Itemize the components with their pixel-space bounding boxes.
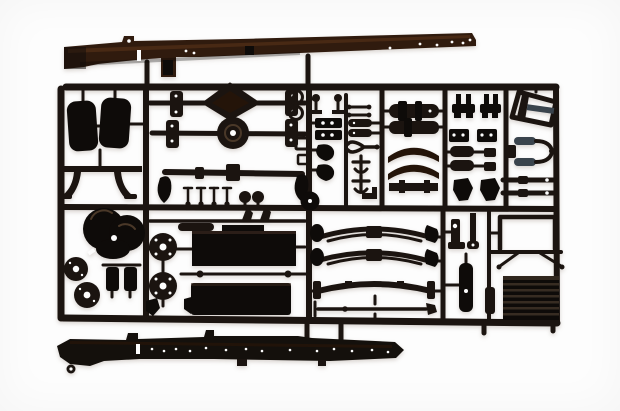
dumbbell-ends-4 (367, 113, 372, 118)
hub-disc-2-bolts-1 (155, 278, 158, 281)
hub-disc-2-bolts-2 (169, 278, 172, 281)
brake-drum-base (96, 239, 130, 259)
chassis-rail-bottom-rivet-12 (351, 350, 354, 353)
seat-legs-1 (500, 253, 518, 266)
radiator-ribs-2 (503, 289, 559, 292)
battery-box-1 (106, 267, 119, 291)
chassis-rail-bottom-hook-hole (69, 367, 72, 370)
seat-feet-1 (497, 265, 502, 270)
spring-hanger-2-prong-b (493, 94, 498, 105)
chassis-rail-top-ear-hole (127, 39, 131, 43)
brake-disc-1-bolts-1 (69, 262, 71, 264)
support-stand-foot-right (124, 194, 137, 199)
radiator-ribs-5 (503, 307, 559, 310)
clevis-prong-2 (536, 152, 552, 162)
muffler-2 (389, 121, 439, 134)
brake-disc-2-hole (84, 292, 91, 299)
chassis-rail-bottom-rivet-6 (225, 349, 228, 352)
axle-flange-3-bolts-2 (171, 140, 174, 143)
spring-hanger-2-prong-a (484, 94, 489, 105)
axle-flange-4-bolts-2 (290, 139, 293, 142)
shock-absorber-2-dot (353, 132, 355, 134)
chassis-rail-bottom-rivet-1 (151, 348, 154, 351)
seat-frame (500, 217, 555, 249)
front-axle-end-1 (313, 281, 321, 299)
tie-rod-end-right (426, 303, 437, 315)
channel-bar-tab-1 (399, 180, 405, 193)
leaf-drop-1 (316, 144, 334, 161)
axle-flange-1-bolts-1 (175, 95, 178, 98)
kingpin-2-base (332, 110, 344, 114)
chassis-rail-top-rivet-1 (185, 50, 188, 53)
chassis-rail-bottom-rivet-2 (163, 350, 166, 353)
spring-hanger-1-prong-a (456, 94, 461, 105)
axle-flange-3 (166, 120, 179, 148)
muffler-1-dot (429, 110, 432, 113)
valve-feet-1 (185, 201, 190, 206)
hub-disc-1-hole (160, 244, 167, 251)
l-bracket-hole (453, 224, 457, 228)
spring-pack-1 (315, 118, 342, 128)
shock-absorber-1 (348, 119, 372, 127)
sprue-photo-svg (0, 0, 620, 411)
mudflap-drop-left (158, 176, 172, 203)
hub-disc-2-bolts-3 (155, 292, 158, 295)
mudflap-boot-1 (453, 178, 473, 201)
tie-rod-collar (342, 306, 348, 312)
spring-pack-2 (315, 130, 342, 140)
radiator-ribs-3 (503, 295, 559, 298)
chassis-rail-bottom-rivet-9 (289, 349, 292, 352)
front-axle-beam (318, 284, 431, 291)
leaf-spring-2-eye (310, 248, 324, 266)
radiator-ribs-4 (503, 301, 559, 304)
spring-pack-1-slots-2 (330, 121, 334, 125)
chassis-rail-bottom-tab-1 (237, 359, 247, 366)
hub-disc-1-bolts-4 (169, 253, 172, 256)
valve-feet-2 (198, 201, 203, 206)
dumbbell-ends-3 (347, 113, 352, 118)
air-tank-1-cap (484, 148, 496, 157)
muffler-1-band-2 (415, 101, 422, 121)
hub-disc-1-bolts-3 (155, 253, 158, 256)
shock-absorber-1-dot (353, 122, 355, 124)
tank-rod-collar-2 (285, 271, 292, 278)
diff-housing-round-hub (230, 130, 236, 136)
small-cap-2 (252, 191, 264, 203)
valve-feet-4 (224, 201, 229, 206)
chassis-rail-bottom (57, 330, 404, 366)
spring-hanger-1-foot-a (454, 113, 461, 118)
chassis-rail-bottom-rivet-14 (387, 351, 390, 354)
chassis-rail-bottom-rivet-13 (371, 349, 374, 352)
leaf-spring-2-clamp (366, 249, 382, 261)
mirror-frame-crossbar (527, 104, 555, 114)
seat-feet-2 (560, 265, 565, 270)
chassis-rail-bottom-rivet-10 (316, 350, 319, 353)
bolt-plate-2-bolts-1 (480, 133, 483, 136)
pin-stick-hole (472, 244, 475, 247)
clevis-block (507, 145, 516, 158)
spring-hanger-1-foot-b (466, 113, 473, 118)
fuel-tank-bottom (191, 283, 291, 315)
radiator-ribs-1 (503, 283, 559, 286)
chassis-rail-bottom-rivet-11 (333, 348, 336, 351)
bolt-plate-1-bolts-1 (452, 133, 455, 136)
fender-curve-1 (388, 148, 439, 163)
mudguard-left (66, 100, 98, 152)
driveshaft-collar-1 (226, 164, 240, 181)
hub-disc-1-bolts-2 (169, 239, 172, 242)
clevis-ball (549, 148, 555, 154)
hub-disc-2-bolts-4 (169, 292, 172, 295)
bolt-plate-2 (477, 129, 497, 142)
valve-feet-3 (211, 201, 216, 206)
axle-flange-4-bolts-1 (290, 124, 293, 127)
spring-pack-2-slots-1 (321, 133, 325, 137)
brake-disc-1-bolts-2 (81, 274, 83, 276)
product-photo (0, 0, 620, 411)
muffler-vertical (459, 263, 473, 312)
front-axle-perch-1 (345, 281, 352, 288)
chassis-rail-top-rivet-8 (469, 39, 472, 42)
tank-rod-collar-1 (197, 271, 204, 278)
chassis-rail-top-rivet-3 (389, 47, 392, 50)
l-bracket (451, 219, 460, 246)
fuel-tank-bottom-sheen (191, 283, 291, 286)
torque-rod-1-hole (545, 178, 549, 182)
torque-rod-2-hole (545, 191, 549, 195)
chassis-rail-top-tip-shade (64, 47, 86, 69)
channel-bar (389, 183, 438, 191)
support-stand-bar (62, 166, 142, 172)
chassis-rail-top-rivet-4 (419, 43, 422, 46)
leaf-spring-1-shackle (425, 225, 439, 243)
muffler-1-band-1 (398, 101, 407, 121)
clevis-arm-2 (514, 158, 536, 166)
chassis-rail-top-rivet-7 (462, 42, 465, 45)
l-bracket-foot (448, 242, 465, 249)
chassis-rail-bottom-rivet-8 (261, 350, 264, 353)
fender-curve-2 (388, 165, 439, 180)
small-cap-1 (239, 191, 251, 203)
driveshaft-collar-2 (195, 167, 204, 179)
bolt-plate-1 (449, 129, 469, 142)
front-axle-end-2 (427, 281, 435, 299)
bolt-plate-1-bolts-2 (461, 133, 464, 136)
chassis-rail-top-slot (137, 50, 141, 61)
air-tank-2 (450, 160, 474, 171)
shock-absorber-2 (348, 129, 372, 137)
pin-stick (470, 213, 476, 243)
chassis-rail-bottom-tab-2 (318, 360, 326, 366)
chassis-rail-top-block (245, 46, 254, 55)
fuel-tank-top-sheen (192, 231, 296, 234)
chassis-rail-top-rivet-5 (436, 44, 439, 47)
dumbbell-ends-2 (367, 105, 372, 110)
spring-hanger-1-body (452, 104, 475, 113)
small-post (485, 287, 495, 314)
muffler-2-band (404, 118, 412, 137)
chassis-rail-bottom-slot (136, 344, 140, 354)
spring-hanger-2-foot-b (492, 113, 498, 118)
corner-bracket-wall (372, 187, 377, 199)
leaf-spring-2-shackle (425, 249, 439, 267)
radiator-ribs-6 (503, 313, 559, 316)
leaf-spring-1-eye (310, 224, 324, 242)
chassis-rail-bottom-rivet-4 (189, 350, 192, 353)
brake-drum-hole (111, 235, 117, 241)
channel-bar-tab-2 (424, 180, 430, 193)
wishbone-fork (348, 142, 377, 152)
chassis-rail-bottom-rivet-3 (175, 348, 178, 351)
chassis-rail-top-bracket (163, 60, 173, 75)
axle-flange-3-bolts-1 (171, 125, 174, 128)
spring-pack-2-slots-2 (330, 133, 334, 137)
hub-disc-1-bolts-1 (155, 239, 158, 242)
torque-rod-1-collar (518, 176, 528, 184)
chassis-rail-bottom-rivet-7 (245, 348, 248, 351)
torque-rod-2-collar (518, 189, 528, 197)
chassis-rail-top-rivet-2 (193, 52, 196, 55)
brake-disc-1-hole (73, 266, 79, 272)
mudflap-boot-2 (480, 178, 500, 201)
kingpin-1-base (310, 110, 322, 114)
brake-disc-2-bolts-2 (93, 300, 95, 302)
mudguard-right (98, 97, 131, 149)
hub-disc-2-hole (160, 283, 167, 290)
air-tank-2-cap (484, 162, 496, 171)
bolt-plate-2-bolts-2 (489, 133, 492, 136)
clamp-bar (178, 223, 214, 231)
spring-hanger-1-prong-b (466, 94, 471, 105)
spring-hanger-2-body (480, 104, 501, 113)
battery-box-2 (124, 267, 137, 291)
wheel-hub-large-hole (308, 199, 312, 203)
leaf-spring-1-clamp (366, 226, 382, 238)
support-stand-foot-left (59, 194, 72, 199)
chassis-rail-top-rivet-6 (451, 41, 454, 44)
spring-pack-1-slots-1 (321, 121, 325, 125)
chassis-rail-bottom-rivet-5 (205, 347, 208, 350)
clevis-arm-1 (514, 137, 536, 145)
muffler-vertical-hole (464, 289, 468, 293)
leaf-drop-2 (316, 164, 334, 181)
spring-hanger-2-foot-a (482, 113, 488, 118)
radiator-top-lip (503, 276, 559, 280)
air-tank-1 (450, 146, 474, 157)
front-axle-perch-2 (397, 281, 404, 288)
axle-flange-1-bolts-2 (175, 111, 178, 114)
brake-disc-2-bolts-1 (79, 288, 81, 290)
dumbbell-ends-1 (347, 105, 352, 110)
wishbone-ball (375, 145, 380, 150)
brake-drum-notch (87, 248, 95, 255)
